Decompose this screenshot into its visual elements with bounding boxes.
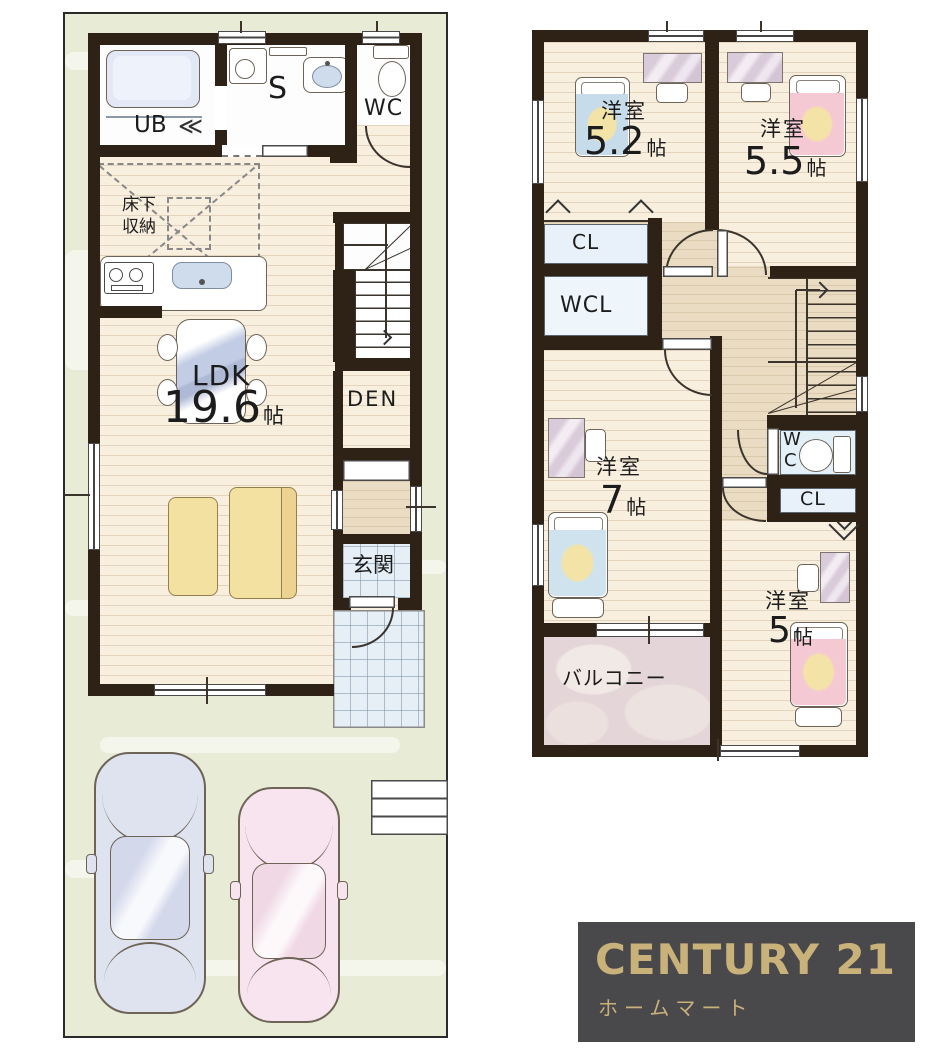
car-mirror bbox=[337, 881, 348, 900]
window bbox=[410, 486, 422, 532]
door-panel bbox=[722, 477, 767, 488]
dimension-tick bbox=[376, 21, 378, 32]
wall bbox=[333, 460, 343, 490]
stairs-treads-1f bbox=[355, 270, 412, 362]
dimension-tick bbox=[240, 21, 242, 33]
toilet-label-2f: W bbox=[783, 431, 801, 449]
pillow bbox=[796, 80, 840, 94]
floor-plan-canvas: ≪ UB S WC 床下 収納 LDK 19.6帖 DEN 玄関 bbox=[0, 0, 927, 1051]
wall bbox=[333, 212, 415, 223]
wall bbox=[345, 33, 357, 163]
washer-drum-icon bbox=[235, 59, 255, 79]
door-panel bbox=[767, 428, 779, 475]
window bbox=[88, 443, 100, 550]
window bbox=[362, 31, 400, 44]
door-gap bbox=[215, 86, 227, 130]
car-mirror bbox=[203, 854, 214, 874]
side-table bbox=[552, 598, 604, 618]
toilet-label-1f: WC bbox=[364, 98, 403, 120]
wall bbox=[333, 371, 343, 448]
dimension-tick bbox=[648, 616, 650, 644]
window bbox=[720, 745, 800, 757]
hall-closet bbox=[343, 460, 410, 481]
underfloor-storage-hatch bbox=[167, 197, 211, 250]
sofa-seat bbox=[229, 487, 289, 599]
wall bbox=[780, 475, 856, 488]
closet-a-label: CL bbox=[572, 232, 599, 252]
ldk-size: 19.6帖 bbox=[163, 386, 284, 430]
balcony-floor bbox=[544, 637, 710, 745]
toilet-bowl-2f bbox=[799, 439, 833, 472]
entrance-door-panel bbox=[349, 596, 395, 608]
desk-chair bbox=[741, 83, 771, 102]
closet-b-label: CL bbox=[800, 490, 826, 509]
dimension-tick bbox=[760, 21, 762, 32]
sink-bowl bbox=[312, 65, 342, 88]
desk bbox=[727, 52, 783, 83]
toilet-bowl-1f bbox=[378, 61, 406, 97]
stair-guide-line bbox=[385, 223, 387, 338]
car-mirror bbox=[86, 854, 97, 874]
window bbox=[596, 623, 704, 637]
window bbox=[856, 98, 868, 182]
wall bbox=[648, 218, 662, 350]
bedroom-a-size-value: 5.2 bbox=[584, 122, 644, 160]
wall bbox=[333, 544, 343, 598]
wall bbox=[398, 598, 422, 610]
door-panel bbox=[662, 338, 712, 350]
wall bbox=[705, 30, 719, 230]
bath-label: UB bbox=[134, 114, 167, 137]
sanitary-label: S bbox=[268, 74, 287, 104]
wall bbox=[532, 336, 662, 350]
window bbox=[331, 490, 343, 530]
grill-line bbox=[111, 285, 143, 291]
grass-texture bbox=[100, 737, 400, 753]
toilet-tank-1f bbox=[373, 45, 409, 59]
window bbox=[856, 376, 868, 412]
desk bbox=[820, 552, 850, 603]
underfloor-storage-label: 床下 bbox=[122, 197, 156, 214]
stair-line bbox=[768, 361, 856, 363]
vanity-sink bbox=[303, 57, 349, 93]
window bbox=[218, 31, 266, 44]
wall bbox=[88, 33, 100, 696]
dimension-tick bbox=[406, 506, 436, 508]
porch-step bbox=[371, 816, 448, 835]
desk-chair bbox=[656, 83, 688, 103]
car-mirror bbox=[230, 881, 241, 900]
bed-blue bbox=[548, 512, 608, 598]
dimension-tick bbox=[666, 21, 668, 32]
door-panel bbox=[717, 230, 728, 277]
balcony-label: バルコニー bbox=[562, 668, 667, 688]
desk bbox=[548, 418, 585, 478]
dimension-tick bbox=[206, 677, 208, 704]
washing-machine bbox=[229, 48, 267, 84]
window bbox=[648, 30, 704, 42]
dining-chair bbox=[157, 334, 178, 361]
sofa-seat bbox=[168, 497, 218, 596]
wall bbox=[532, 264, 662, 276]
bathtub-inner bbox=[113, 56, 191, 100]
wall bbox=[333, 448, 422, 460]
window bbox=[532, 524, 544, 586]
bedroom-a-size: 5.2帖 bbox=[584, 122, 666, 160]
bedroom-d-size-value: 5 bbox=[768, 613, 791, 649]
car-roof bbox=[252, 863, 326, 959]
faucet-dot bbox=[199, 279, 205, 285]
window bbox=[154, 684, 266, 696]
walk-in-closet-label: WCL bbox=[560, 295, 612, 317]
dimension-tick bbox=[64, 494, 90, 496]
wall bbox=[335, 358, 415, 371]
bedroom-d-size: 5帖 bbox=[768, 613, 813, 649]
underfloor-storage-label: 収納 bbox=[122, 219, 156, 236]
kitchen-sink bbox=[172, 262, 232, 289]
ldk-size-value: 19.6 bbox=[163, 386, 261, 430]
bedroom-b-size-value: 5.5 bbox=[744, 142, 804, 180]
car-blue bbox=[94, 752, 206, 1014]
wall bbox=[333, 270, 355, 362]
blanket bbox=[549, 530, 606, 596]
bedroom-b-size-unit: 帖 bbox=[806, 158, 826, 178]
folding-door-icon: ≪ bbox=[178, 114, 203, 138]
porch-step bbox=[371, 798, 448, 817]
burner-icon bbox=[109, 268, 123, 282]
wall bbox=[532, 745, 868, 757]
burner-icon bbox=[129, 268, 143, 282]
window bbox=[532, 100, 544, 184]
stair-guide-line bbox=[795, 290, 797, 408]
desk bbox=[643, 53, 702, 83]
wall bbox=[335, 223, 343, 270]
wall bbox=[710, 336, 722, 757]
toilet-label-2f: C bbox=[784, 452, 797, 470]
sofa-armrest bbox=[281, 487, 297, 599]
entrance-label: 玄関 bbox=[352, 555, 394, 576]
bedroom-c-size-value: 7 bbox=[600, 481, 624, 519]
bedroom-a-size-unit: 帖 bbox=[646, 138, 666, 158]
wall bbox=[333, 534, 422, 544]
porch-step bbox=[371, 780, 448, 799]
stair-divider-line bbox=[806, 278, 808, 415]
den-label: DEN bbox=[347, 389, 398, 410]
stove bbox=[104, 262, 154, 294]
bedroom-b-label: 洋室 bbox=[760, 119, 806, 140]
car-pink bbox=[238, 787, 340, 1023]
logo-company: ホームマート bbox=[598, 998, 753, 1018]
bedroom-c-size: 7帖 bbox=[600, 481, 646, 519]
counter-shelf bbox=[269, 47, 307, 56]
bedroom-c-label: 洋室 bbox=[596, 457, 642, 478]
dining-chair bbox=[246, 334, 267, 361]
side-table bbox=[795, 707, 842, 727]
door-panel bbox=[663, 266, 713, 277]
bedroom-c-size-unit: 帖 bbox=[626, 497, 646, 517]
bedroom-d-size-unit: 帖 bbox=[793, 627, 813, 647]
century21-logo: CENTURY 21 ホームマート bbox=[578, 922, 915, 1042]
wall bbox=[330, 151, 357, 163]
dimension-tick bbox=[717, 739, 719, 761]
bathtub bbox=[106, 50, 200, 108]
ldk-size-unit: 帖 bbox=[263, 406, 284, 427]
window bbox=[736, 30, 794, 42]
wall bbox=[88, 306, 162, 318]
bedroom-b-size: 5.5帖 bbox=[744, 142, 826, 180]
faucet-dot bbox=[325, 61, 330, 66]
bedroom-d-label: 洋室 bbox=[765, 591, 811, 612]
entrance-storage bbox=[343, 481, 410, 534]
logo-brand: CENTURY 21 bbox=[595, 939, 896, 981]
wall bbox=[770, 266, 856, 278]
toilet-tank-2f bbox=[833, 436, 851, 473]
car-roof bbox=[110, 836, 190, 940]
open-passage-dashed bbox=[222, 145, 262, 157]
door-panel bbox=[262, 145, 308, 157]
wall bbox=[767, 415, 856, 430]
stair-line bbox=[343, 244, 388, 246]
desk-chair bbox=[797, 564, 819, 592]
